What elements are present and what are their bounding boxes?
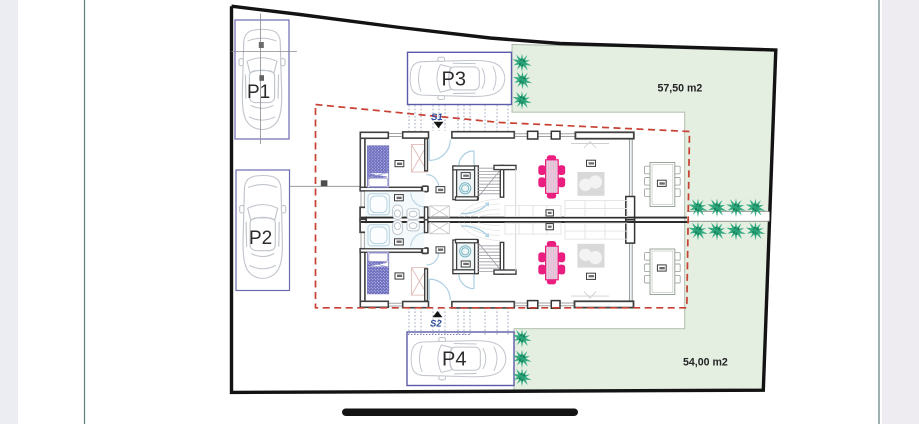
svg-text:P3: P3 <box>442 69 466 91</box>
svg-text:57,50 m2: 57,50 m2 <box>658 83 703 95</box>
svg-text:P4: P4 <box>442 349 466 371</box>
svg-text:P2: P2 <box>249 228 272 249</box>
svg-text:P1: P1 <box>247 82 270 103</box>
svg-text:S2: S2 <box>430 319 442 330</box>
svg-text:54,00 m2: 54,00 m2 <box>683 357 728 369</box>
svg-text:S1: S1 <box>431 112 443 123</box>
